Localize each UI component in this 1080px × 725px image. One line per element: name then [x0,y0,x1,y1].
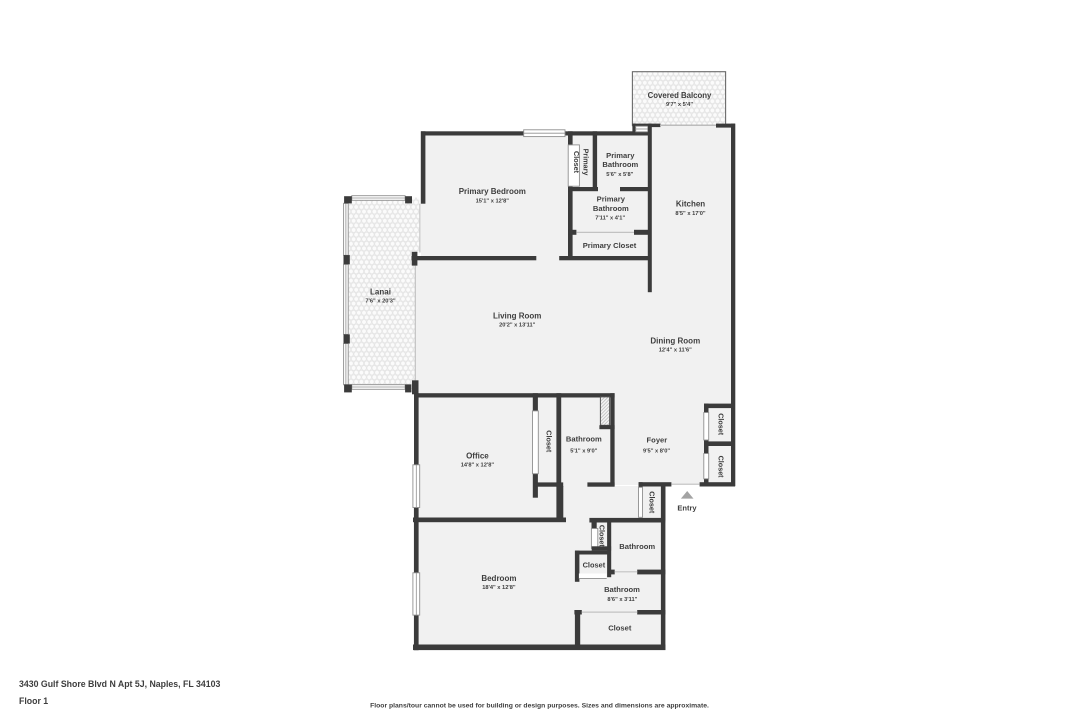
svg-text:Bathroom: Bathroom [566,434,602,443]
svg-text:12'4" x 11'6": 12'4" x 11'6" [659,348,692,354]
svg-text:Primary: Primary [606,151,635,160]
svg-text:Closet: Closet [583,560,606,569]
svg-text:Closet: Closet [647,491,656,514]
svg-text:Bathroom: Bathroom [604,585,640,594]
svg-text:Primary Bedroom: Primary Bedroom [459,187,526,196]
svg-text:9'7" x 5'4": 9'7" x 5'4" [666,102,693,108]
svg-text:5'6" x 5'8": 5'6" x 5'8" [606,172,633,178]
svg-text:15'1" x 12'8": 15'1" x 12'8" [476,198,510,204]
svg-text:Floor 1: Floor 1 [19,696,48,706]
svg-text:Primary: Primary [597,195,626,204]
svg-text:Dining Room: Dining Room [650,336,700,345]
svg-text:Closet: Closet [598,525,607,548]
svg-text:Closet: Closet [545,430,554,453]
svg-text:7'6" x 20'3": 7'6" x 20'3" [365,299,396,305]
svg-text:Primary: Primary [581,149,590,176]
svg-text:Kitchen: Kitchen [676,200,705,209]
svg-text:Bathroom: Bathroom [619,542,655,551]
svg-text:14'8" x 12'8": 14'8" x 12'8" [461,463,495,469]
svg-text:20'2" x 13'11": 20'2" x 13'11" [499,323,536,329]
svg-text:Office: Office [466,451,489,460]
svg-text:3430 Gulf Shore Blvd N Apt 5J,: 3430 Gulf Shore Blvd N Apt 5J, Naples, F… [19,679,220,689]
svg-text:Living Room: Living Room [493,311,541,320]
svg-text:9'5" x 8'0": 9'5" x 8'0" [643,448,670,454]
svg-text:Bedroom: Bedroom [481,574,516,583]
svg-text:Foyer: Foyer [647,435,668,444]
svg-text:Primary Closet: Primary Closet [583,241,637,250]
svg-text:Covered Balcony: Covered Balcony [648,91,712,100]
svg-text:Closet: Closet [572,151,581,174]
svg-text:Bathroom: Bathroom [602,160,638,169]
svg-text:Floor plans/tour cannot be use: Floor plans/tour cannot be used for buil… [370,703,709,710]
svg-text:Closet: Closet [716,413,725,436]
svg-text:Lanai: Lanai [370,287,391,296]
svg-text:Entry: Entry [677,503,697,512]
svg-text:8'5" x 17'0": 8'5" x 17'0" [675,211,706,217]
svg-text:Closet: Closet [608,623,632,632]
svg-text:8'6" x 3'11": 8'6" x 3'11" [607,597,637,603]
svg-text:7'11" x 4'1": 7'11" x 4'1" [595,216,625,222]
svg-text:18'4" x 12'8": 18'4" x 12'8" [482,585,516,591]
svg-text:5'1" x 9'0": 5'1" x 9'0" [570,448,597,454]
svg-text:Bathroom: Bathroom [593,204,629,213]
svg-text:Closet: Closet [716,456,725,479]
